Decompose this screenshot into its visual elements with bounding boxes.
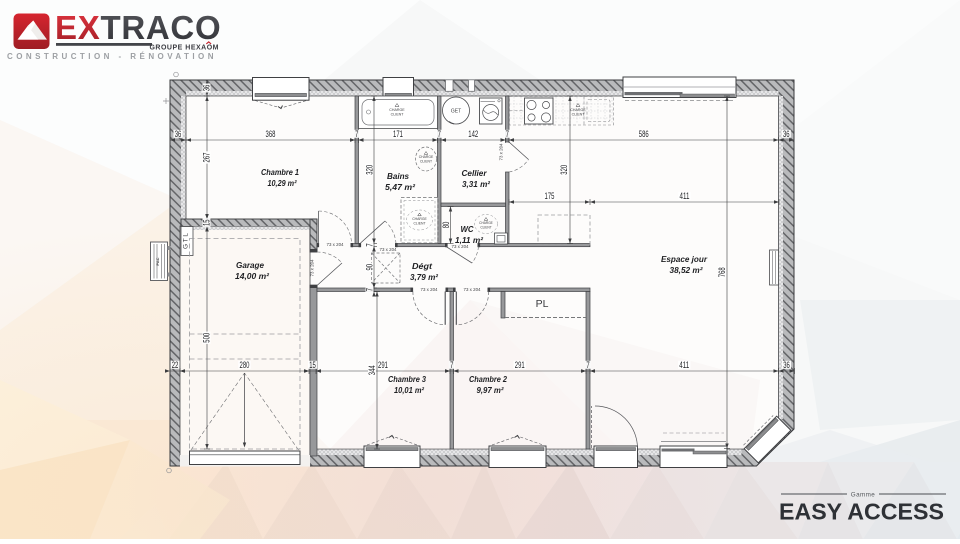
svg-text:Garage: Garage: [236, 261, 264, 270]
svg-text:CLIENT: CLIENT: [391, 113, 405, 117]
svg-text:14,00 m²: 14,00 m²: [235, 272, 269, 281]
svg-text:586: 586: [639, 129, 649, 139]
svg-text:7: 7: [506, 129, 509, 139]
svg-text:500: 500: [202, 333, 212, 343]
svg-text:36: 36: [783, 129, 790, 139]
svg-text:280: 280: [240, 360, 250, 370]
svg-text:73 x 204: 73 x 204: [380, 247, 397, 252]
svg-text:5,47 m²: 5,47 m²: [385, 183, 415, 192]
svg-text:CLIENT: CLIENT: [480, 225, 491, 229]
svg-text:7: 7: [365, 243, 375, 246]
svg-text:80: 80: [441, 222, 451, 229]
svg-text:344: 344: [367, 365, 377, 375]
svg-text:36: 36: [202, 85, 212, 92]
svg-text:7: 7: [438, 129, 441, 139]
svg-text:PL: PL: [536, 298, 549, 310]
svg-text:GET: GET: [451, 109, 461, 115]
svg-text:7: 7: [450, 360, 453, 370]
svg-text:320: 320: [365, 165, 375, 175]
svg-text:291: 291: [515, 360, 525, 370]
svg-text:Chambre 2: Chambre 2: [469, 375, 507, 384]
svg-text:36: 36: [175, 129, 182, 139]
svg-text:1,11 m²: 1,11 m²: [455, 236, 483, 245]
svg-text:CHARGE: CHARGE: [389, 108, 405, 112]
svg-text:73 x 204: 73 x 204: [499, 143, 504, 160]
svg-text:7: 7: [586, 360, 589, 370]
svg-text:10,29 m²: 10,29 m²: [268, 179, 297, 188]
svg-text:TRACO: TRACO: [101, 9, 222, 46]
svg-text:Espace jour: Espace jour: [661, 255, 708, 264]
svg-text:Chambre 1: Chambre 1: [261, 168, 299, 177]
svg-text:Cellier: Cellier: [462, 169, 488, 178]
svg-text:7: 7: [355, 129, 358, 139]
svg-text:15: 15: [309, 360, 316, 370]
svg-text:CHARGE: CHARGE: [570, 108, 586, 112]
svg-text:CONSTRUCTION - RÉNOVATION: CONSTRUCTION - RÉNOVATION: [7, 52, 217, 61]
svg-text:175: 175: [545, 191, 555, 201]
svg-text:CHARGE: CHARGE: [412, 217, 427, 221]
svg-text:90: 90: [365, 264, 375, 271]
svg-text:411: 411: [680, 191, 690, 201]
svg-text:Chambre 3: Chambre 3: [388, 375, 426, 384]
svg-text:73 x 204: 73 x 204: [421, 287, 438, 292]
svg-text:73 x 204: 73 x 204: [327, 242, 344, 247]
svg-text:368: 368: [266, 129, 276, 139]
svg-text:171: 171: [393, 129, 403, 139]
svg-text:3,31 m²: 3,31 m²: [462, 180, 490, 189]
svg-text:CLIENT: CLIENT: [420, 160, 432, 164]
svg-text:267: 267: [202, 153, 212, 163]
svg-text:EX: EX: [55, 9, 100, 46]
svg-text:15: 15: [202, 219, 212, 226]
svg-text:CHARGE: CHARGE: [419, 155, 434, 159]
svg-text:768: 768: [717, 267, 727, 277]
svg-text:142: 142: [468, 129, 478, 139]
svg-text:73 x 204: 73 x 204: [464, 287, 481, 292]
svg-text:Gamme: Gamme: [851, 492, 875, 499]
svg-text:EASY ACCESS: EASY ACCESS: [779, 499, 944, 525]
svg-text:Bains: Bains: [387, 172, 409, 181]
svg-text:7: 7: [365, 288, 375, 291]
svg-text:36: 36: [783, 360, 790, 370]
svg-text:CLIENT: CLIENT: [413, 222, 425, 226]
svg-text:73 x 204: 73 x 204: [310, 259, 315, 276]
svg-text:10,01 m²: 10,01 m²: [394, 386, 424, 395]
svg-text:291: 291: [378, 360, 388, 370]
svg-text:CLIENT: CLIENT: [572, 113, 586, 117]
svg-text:GROUPE HEXAOM: GROUPE HEXAOM: [149, 44, 219, 51]
svg-text:320: 320: [559, 165, 569, 175]
svg-text:22: 22: [172, 360, 179, 370]
svg-text:9,97 m²: 9,97 m²: [477, 386, 504, 395]
svg-text:G T L: G T L: [183, 233, 190, 249]
svg-text:3,79 m²: 3,79 m²: [410, 273, 438, 282]
svg-text:PAC: PAC: [155, 257, 160, 265]
svg-text:WC: WC: [461, 225, 475, 234]
svg-text:38,52 m²: 38,52 m²: [670, 266, 703, 275]
svg-text:411: 411: [679, 360, 689, 370]
svg-text:Dégt: Dégt: [412, 262, 432, 271]
